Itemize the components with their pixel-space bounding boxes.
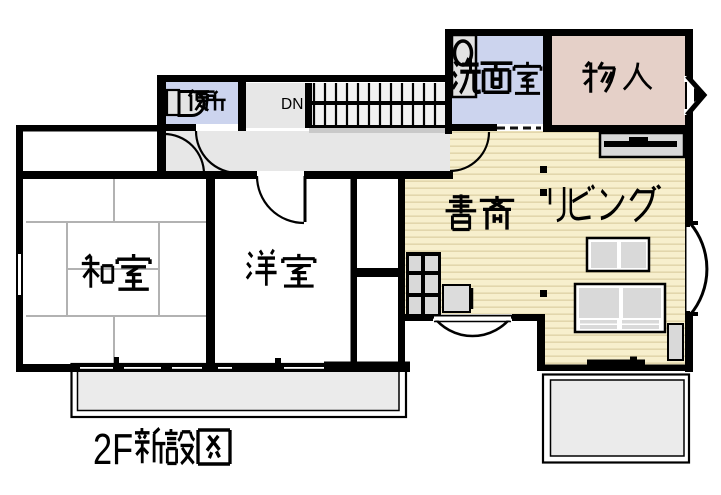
svg-text:DN: DN — [281, 96, 303, 113]
svg-text:2F: 2F — [93, 425, 133, 474]
